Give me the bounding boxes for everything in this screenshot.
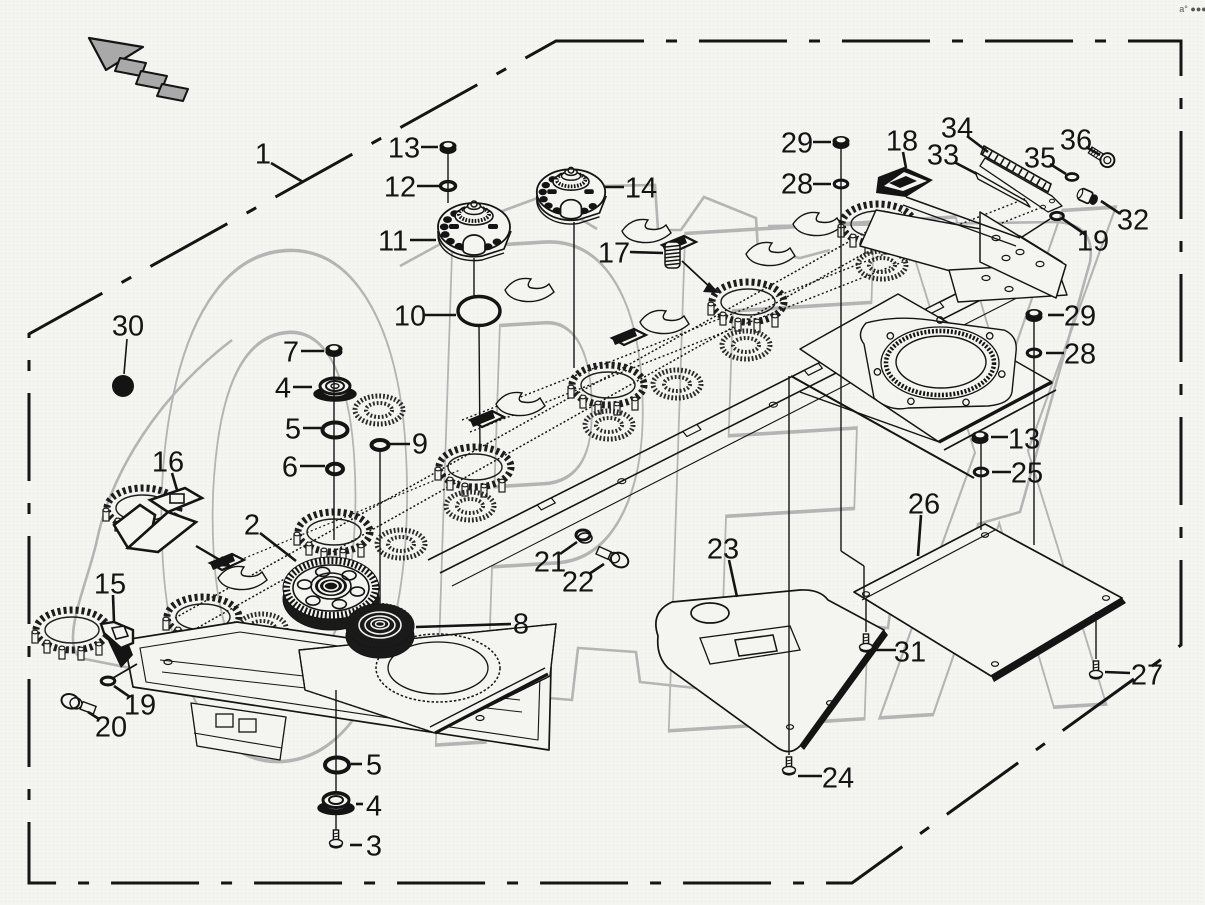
svg-text:20: 20 [95, 711, 127, 743]
svg-text:5: 5 [285, 413, 301, 445]
svg-text:14: 14 [625, 172, 657, 204]
svg-text:24: 24 [822, 762, 854, 794]
svg-text:27: 27 [1131, 659, 1163, 691]
svg-text:30: 30 [112, 310, 144, 342]
svg-text:19: 19 [124, 689, 156, 721]
svg-text:16: 16 [152, 446, 184, 478]
svg-text:2: 2 [244, 509, 260, 541]
svg-text:32: 32 [1117, 204, 1149, 236]
svg-text:5: 5 [366, 749, 382, 781]
svg-text:19: 19 [1077, 225, 1109, 257]
svg-text:35: 35 [1024, 142, 1056, 174]
svg-text:4: 4 [366, 790, 382, 822]
svg-text:33: 33 [927, 139, 959, 171]
svg-text:12: 12 [384, 171, 416, 203]
svg-text:31: 31 [894, 636, 926, 668]
svg-text:25: 25 [1011, 457, 1043, 489]
svg-text:29: 29 [1064, 300, 1096, 332]
svg-text:29: 29 [781, 127, 813, 159]
svg-text:22: 22 [562, 566, 594, 598]
svg-text:6: 6 [282, 451, 298, 483]
svg-text:7: 7 [283, 336, 299, 368]
svg-text:15: 15 [94, 568, 126, 600]
svg-text:28: 28 [1064, 338, 1096, 370]
svg-text:4: 4 [275, 372, 291, 404]
svg-text:26: 26 [908, 488, 940, 520]
svg-text:9: 9 [412, 428, 428, 460]
svg-text:13: 13 [1008, 423, 1040, 455]
svg-text:13: 13 [388, 132, 420, 164]
svg-text:1: 1 [255, 138, 271, 170]
svg-text:23: 23 [707, 533, 739, 565]
svg-text:36: 36 [1060, 124, 1092, 156]
svg-text:28: 28 [781, 168, 813, 200]
svg-text:3: 3 [366, 830, 382, 862]
svg-text:17: 17 [598, 237, 630, 269]
svg-text:10: 10 [394, 300, 426, 332]
svg-text:a° ●●●: a° ●●● [1179, 4, 1205, 14]
svg-text:8: 8 [513, 608, 529, 640]
svg-text:11: 11 [378, 225, 408, 257]
